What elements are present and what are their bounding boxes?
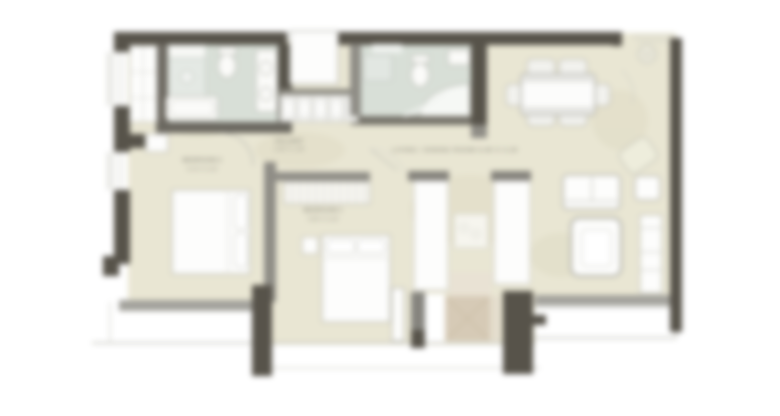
svg-text:4.10 X 3.20: 4.10 X 3.20 bbox=[187, 167, 218, 173]
svg-text:BEDROOM 1: BEDROOM 1 bbox=[303, 207, 343, 214]
svg-text:LIVING / DINING ROOM 6.90 X 4.: LIVING / DINING ROOM 6.90 X 4.20 bbox=[392, 147, 518, 154]
svg-text:3.80 X 3.20: 3.80 X 3.20 bbox=[308, 217, 339, 223]
svg-text:HALLWAY: HALLWAY bbox=[275, 139, 304, 145]
svg-text:BEDROOM 2: BEDROOM 2 bbox=[182, 157, 222, 164]
svg-text:2.60 X 1.50: 2.60 X 1.50 bbox=[274, 147, 305, 153]
